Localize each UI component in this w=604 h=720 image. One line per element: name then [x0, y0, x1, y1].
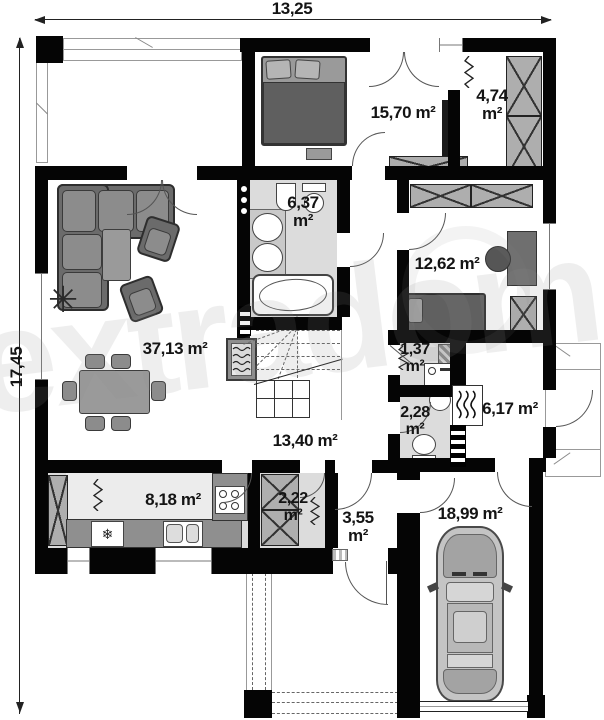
walkway-dash — [265, 568, 266, 690]
fridge: ❄ — [91, 521, 124, 547]
walkway-vertical — [246, 566, 272, 692]
car-trunk — [443, 669, 497, 694]
area-unit: m² — [406, 421, 425, 438]
coffee-table — [102, 229, 131, 281]
dining-table — [79, 370, 150, 414]
wall — [543, 427, 556, 458]
sink — [252, 243, 283, 272]
wall — [397, 460, 420, 480]
room-label-wc: 2,28m² — [392, 404, 438, 438]
car-sunroof — [453, 611, 487, 643]
wall — [35, 166, 127, 180]
stairs-edge — [341, 317, 342, 420]
room-label-dressing: 4,74m² — [462, 87, 522, 123]
wall — [337, 267, 350, 317]
armchair-seat — [128, 287, 158, 317]
dining-chair — [62, 381, 77, 401]
area-value: 1,37 — [400, 341, 430, 358]
wall — [35, 380, 48, 550]
sink-bowl — [166, 524, 183, 543]
car-vent — [452, 572, 466, 576]
arrow-right-icon — [541, 16, 552, 24]
wall — [197, 166, 352, 180]
area-unit: m² — [482, 104, 502, 123]
wall — [337, 180, 350, 233]
desk — [507, 231, 537, 286]
wall — [242, 38, 255, 180]
wall — [543, 38, 556, 223]
area-value: 6,37 — [287, 193, 319, 212]
wall — [36, 36, 63, 63]
sofa-cushion — [62, 190, 96, 232]
dining-chair — [111, 416, 131, 431]
walkway-dash — [272, 692, 398, 693]
wall — [527, 695, 545, 718]
door-leaf — [386, 561, 387, 604]
wall — [35, 166, 48, 273]
fireplace-inner — [231, 343, 252, 376]
car-rear-window — [447, 654, 493, 668]
room-label-hall: 13,40 m² — [257, 432, 353, 450]
room-label-vestibule: 3,55m² — [333, 509, 383, 545]
pillow — [294, 59, 320, 80]
walkway-dash — [252, 568, 253, 690]
wall-hook — [241, 186, 247, 192]
area-value: 3,55 — [342, 508, 374, 527]
wall — [48, 460, 222, 473]
wall — [462, 38, 556, 52]
car-windshield — [446, 582, 494, 602]
sink-bowl — [186, 524, 199, 543]
wall — [252, 460, 300, 473]
radiator-icon — [93, 479, 103, 511]
vent-grille — [239, 306, 251, 336]
room-label-bedroom-top: 15,70 m² — [355, 104, 451, 122]
stairs — [252, 317, 344, 421]
wall — [397, 180, 409, 213]
arrow-up-icon — [16, 37, 24, 48]
wardrobe — [410, 184, 471, 208]
armchair-seat — [143, 227, 172, 257]
window — [155, 548, 212, 574]
stair-tread — [256, 330, 340, 331]
dimension-top — [35, 19, 551, 20]
burner — [231, 502, 239, 510]
wall — [397, 513, 420, 695]
area-value: 2,22 — [278, 490, 308, 507]
bench — [306, 148, 332, 160]
arrow-left-icon — [34, 16, 45, 24]
stair-step-line — [274, 380, 275, 418]
sofa-cushion — [62, 234, 102, 270]
terrace-top-line — [63, 49, 242, 50]
wall — [90, 548, 155, 574]
wardrobe — [471, 184, 533, 208]
area-unit: m² — [348, 526, 368, 545]
window — [439, 38, 463, 52]
toilet-tank — [302, 183, 326, 192]
walkway-dash — [272, 702, 398, 703]
room-label-garage: 18,99 m² — [422, 505, 518, 523]
wall — [250, 317, 342, 330]
flame-waves-icon — [232, 344, 251, 375]
area-value: 2,28 — [400, 404, 430, 421]
wall — [212, 548, 333, 574]
walkway-dash — [272, 713, 398, 714]
stair-tread — [256, 369, 340, 370]
wall — [325, 460, 335, 473]
area-unit: m² — [406, 358, 425, 375]
room-label-kitchen: 8,18 m² — [125, 491, 221, 509]
washer-panel — [440, 368, 450, 371]
wall — [35, 548, 67, 574]
stair-tread — [256, 343, 340, 344]
wall — [543, 290, 556, 390]
area-value: 4,74 — [476, 86, 508, 105]
pillow — [265, 59, 291, 80]
wall — [240, 38, 370, 52]
wall — [397, 695, 420, 718]
stair-tread — [256, 356, 340, 357]
room-label-pantry: 2,22m² — [268, 490, 318, 524]
window — [67, 548, 90, 574]
fence-post — [244, 690, 272, 718]
area-unit: m² — [293, 211, 313, 230]
dining-chair — [85, 416, 105, 431]
room-label-bathroom: 6,37m² — [273, 194, 333, 230]
area-unit: m² — [284, 507, 303, 524]
wall — [372, 460, 397, 473]
wall-hook — [241, 208, 247, 214]
wall — [385, 166, 556, 180]
radiator-icon — [464, 56, 474, 88]
wall — [450, 343, 466, 385]
room-label-bedroom-right: 12,62 m² — [399, 255, 495, 273]
dining-chair — [85, 354, 105, 369]
pillow — [408, 298, 423, 323]
car-vent — [473, 572, 487, 576]
room-label-boiler: 6,17 m² — [470, 400, 550, 418]
wall — [397, 385, 452, 397]
arrow-down-icon — [16, 702, 24, 713]
floor-plan: 13,25 17,45 ✳ — [0, 0, 604, 720]
room-label-laundry: 1,37m² — [392, 341, 438, 375]
stair-step-line — [256, 398, 310, 399]
window — [35, 273, 48, 380]
walkway-horizontal — [272, 692, 398, 714]
wall — [448, 90, 460, 166]
window — [543, 223, 556, 290]
stair-centerline — [297, 322, 298, 378]
wall — [388, 375, 400, 402]
dimension-width-label: 13,25 — [244, 0, 340, 18]
nightstand — [510, 296, 537, 333]
plant-icon: ✳ — [48, 282, 78, 318]
threshold — [332, 549, 348, 561]
stair-steps — [256, 380, 310, 418]
chimney-grille — [450, 425, 466, 467]
dimension-height-label: 17,45 — [8, 336, 26, 398]
kitchen-cabinet — [48, 475, 68, 546]
door-arc — [345, 562, 388, 605]
room-label-living: 37,13 m² — [127, 340, 223, 358]
stair-step-line — [292, 380, 293, 418]
bed-duvet — [263, 82, 345, 144]
dining-chair — [151, 381, 166, 401]
wall-hook — [241, 197, 247, 203]
garage-door — [420, 701, 528, 712]
